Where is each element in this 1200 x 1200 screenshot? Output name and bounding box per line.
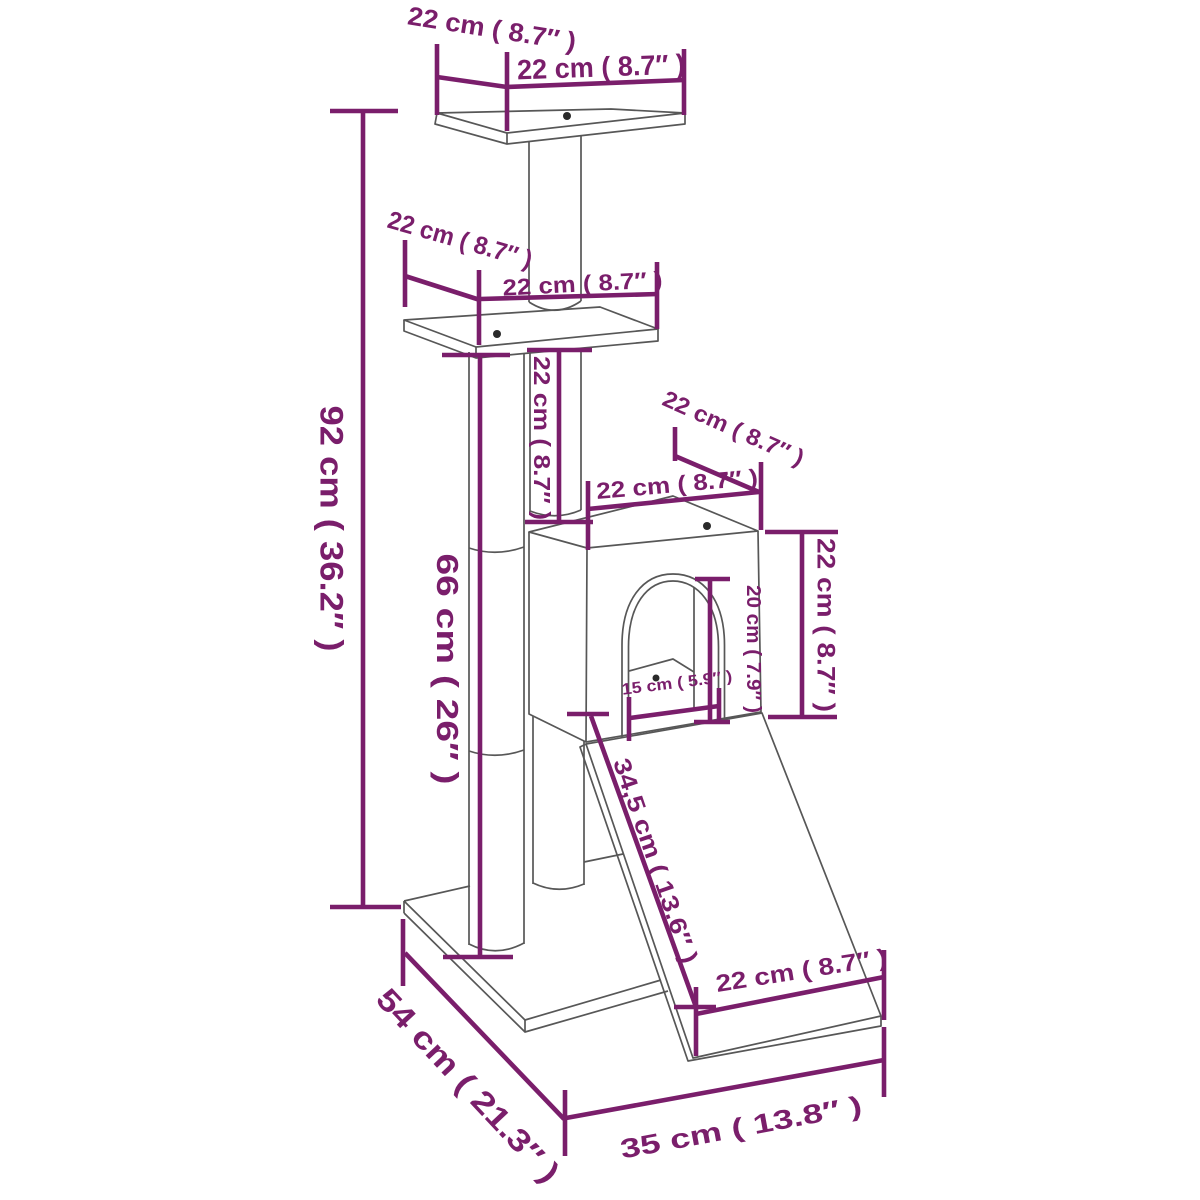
svg-text:66 cm ( 26″ ): 66 cm ( 26″ ) [430,554,465,785]
svg-text:22 cm ( 8.7″ ): 22 cm ( 8.7″ ) [529,356,555,520]
svg-text:92 cm ( 36.2″ ): 92 cm ( 36.2″ ) [314,406,350,652]
svg-text:22 cm ( 8.7″ ): 22 cm ( 8.7″ ) [517,49,686,86]
svg-text:20 cm ( 7.9″ ): 20 cm ( 7.9″ ) [742,585,764,713]
svg-text:22 cm ( 8.7″ ): 22 cm ( 8.7″ ) [812,538,840,712]
